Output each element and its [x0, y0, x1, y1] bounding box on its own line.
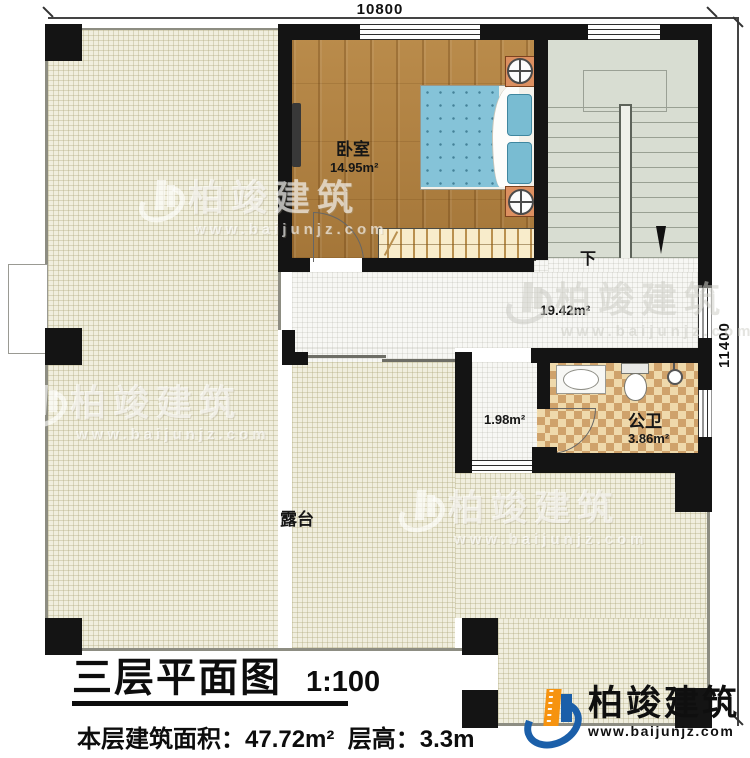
watermark-url: www.baijunjz.com: [194, 221, 387, 238]
bedroom-area: 14.95m²: [330, 161, 378, 174]
watermark-name: 柏竣建筑: [70, 385, 242, 421]
wardrobe: [378, 228, 536, 261]
toilet-bowl-icon: [624, 373, 647, 401]
watermark-name: 柏竣建筑: [188, 180, 360, 216]
corridor-floor: [472, 362, 537, 460]
bed-blanket: [421, 86, 499, 187]
sliding-door-panel: [308, 355, 386, 358]
watermark-name: 柏竣建筑: [448, 490, 620, 526]
column: [45, 328, 82, 365]
terrace-floor-left: [48, 30, 278, 648]
wall-bedroom-stair: [534, 24, 548, 260]
lamp-icon: [508, 189, 534, 215]
wall-segment: [278, 258, 310, 272]
bathroom-area: 3.86m²: [628, 432, 669, 445]
watermark: 柏竣建筑 www.baijunjz.com: [398, 488, 647, 548]
wall-segment: [282, 352, 308, 365]
terrace-railing-right: [707, 512, 710, 690]
column: [462, 618, 498, 655]
tv-icon: [292, 103, 301, 167]
column: [45, 24, 82, 61]
wall-bathroom-south: [550, 453, 712, 473]
hallway-terrace-divider: [278, 272, 281, 330]
watermark: 柏竣建筑 www.baijunjz.com: [505, 280, 750, 340]
shower-head-icon: [667, 369, 683, 385]
watermark: 柏竣建筑 www.baijunjz.com: [138, 178, 387, 238]
corridor-area: 1.98m²: [484, 413, 525, 426]
wall-bathroom-north: [531, 348, 712, 363]
page-title: 三层平面图: [72, 645, 282, 703]
floor-plan-canvas: 卧室 14.95m² 19.42m² 下 1.98m² 公卫 3.86m² 露台…: [0, 0, 750, 758]
drawing-scale: 1:100: [306, 666, 380, 699]
pillow: [507, 142, 532, 184]
watermark-logo-icon: [20, 383, 70, 423]
brand-logo-icon: [522, 686, 584, 746]
watermark-logo-icon: [398, 488, 448, 528]
wall-corner-block: [675, 473, 712, 512]
watermark-name: 柏竣建筑: [555, 282, 727, 318]
watermark: 柏竣建筑 www.baijunjz.com: [20, 383, 269, 443]
hallway-floor-gap2: [534, 260, 548, 272]
stair-railing: [619, 104, 632, 262]
floor-info: 本层建筑面积：47.72m² 层高：3.3m: [77, 719, 474, 754]
window-bedroom-north: [360, 24, 480, 40]
brand-logo: 柏竣建筑 www.baijunjz.com: [522, 686, 740, 746]
wall-east: [698, 24, 712, 288]
sink-basin-icon: [563, 369, 599, 390]
brand-url: www.baijunjz.com: [588, 723, 740, 739]
stairs-down-label: 下: [580, 252, 596, 268]
bedroom-label: 卧室: [336, 141, 370, 158]
wall-bathroom-west: [537, 363, 550, 409]
window-stair-north: [588, 24, 660, 40]
watermark-url: www.baijunjz.com: [76, 426, 269, 443]
watermark-url: www.baijunjz.com: [454, 531, 647, 548]
bathroom-label: 公卫: [628, 413, 662, 430]
title-block: 三层平面图 1:100: [72, 645, 380, 703]
planter-box: [8, 264, 48, 354]
sliding-door-panel: [382, 359, 457, 362]
wall-corridor-west: [455, 352, 472, 473]
pillow: [507, 94, 532, 136]
hallway-floor-stair-gap: [548, 258, 698, 272]
wall-east: [698, 338, 712, 390]
window-bathroom-east: [698, 390, 712, 437]
watermark-logo-icon: [138, 178, 188, 218]
lamp-icon: [507, 58, 533, 84]
brand-name: 柏竣建筑: [588, 686, 740, 721]
wall-bedroom-south: [362, 258, 534, 272]
terrace-label: 露台: [280, 511, 314, 528]
stair-down-arrow-icon: [656, 226, 666, 254]
dimension-top-value: 10800: [48, 1, 712, 18]
watermark-url: www.baijunjz.com: [561, 323, 750, 340]
title-underline: [72, 701, 348, 706]
dimension-line-right: [737, 17, 739, 726]
window-corridor-south: [472, 460, 532, 473]
watermark-logo-icon: [505, 280, 555, 320]
